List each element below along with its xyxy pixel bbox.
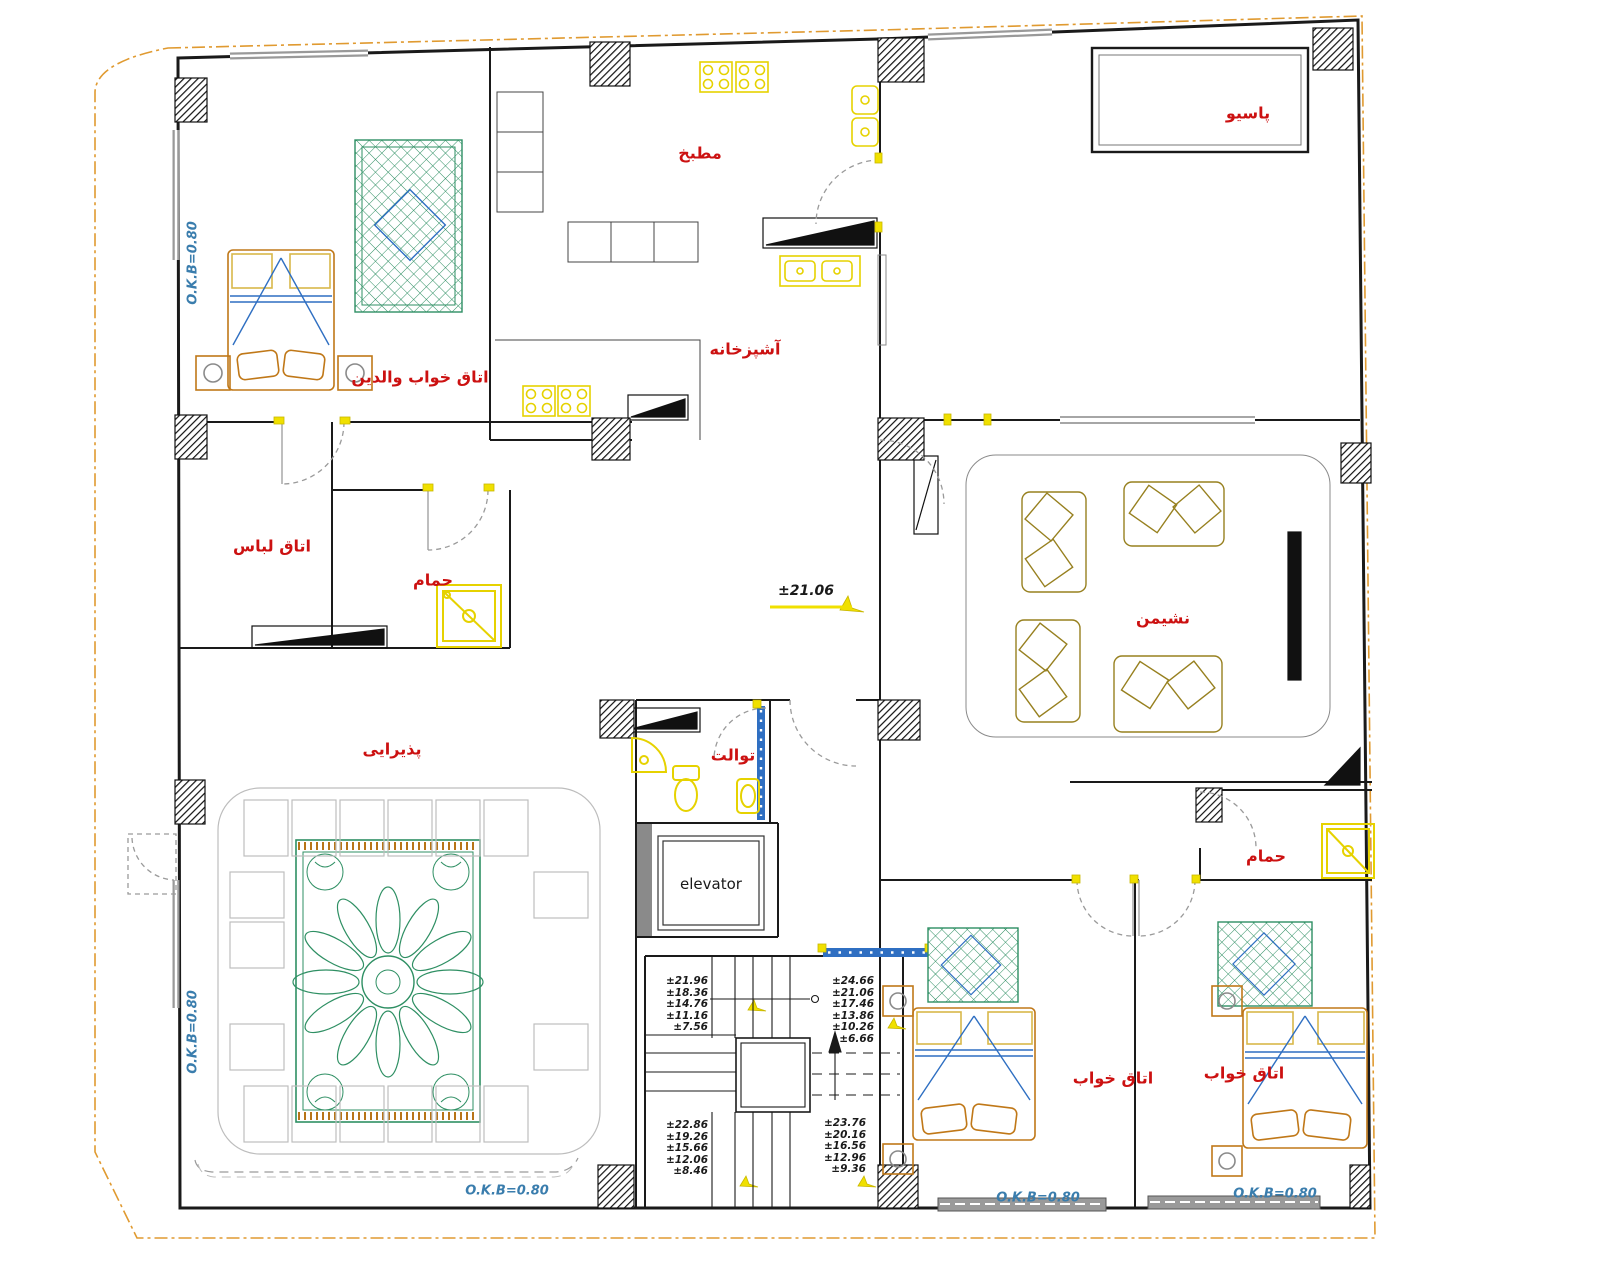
mandala-rug — [293, 840, 483, 1122]
beds — [196, 250, 1367, 1176]
floor-plan-drawing — [0, 0, 1600, 1280]
windows — [176, 32, 1320, 1211]
stair-elevations-lower-left: ±22.86 ±19.26 ±15.66 ±12.06 ±8.46 — [666, 1120, 708, 1178]
stair-elevations-lower-right: ±23.76 ±20.16 ±16.56 ±12.96 ±9.36 — [824, 1118, 866, 1176]
reception-sofas — [218, 788, 600, 1154]
doors — [128, 160, 1256, 936]
elevator-shaft — [637, 824, 764, 936]
living-sofas — [966, 455, 1330, 737]
kitchen-counters — [495, 92, 886, 440]
floor-plan-canvas: اتاق خواب والدین اتاق لباس حمام مطبخ آشپ… — [0, 0, 1600, 1280]
site-boundary — [95, 16, 1375, 1238]
stair-elevations-upper-left: ±21.96 ±18.36 ±14.76 ±11.16 ±7.56 — [666, 976, 708, 1034]
stair-elevations-upper-right: ±24.66 ±21.06 ±17.46 ±13.86 ±10.26 ±6.66 — [832, 976, 874, 1045]
patio-walls — [1092, 48, 1308, 152]
